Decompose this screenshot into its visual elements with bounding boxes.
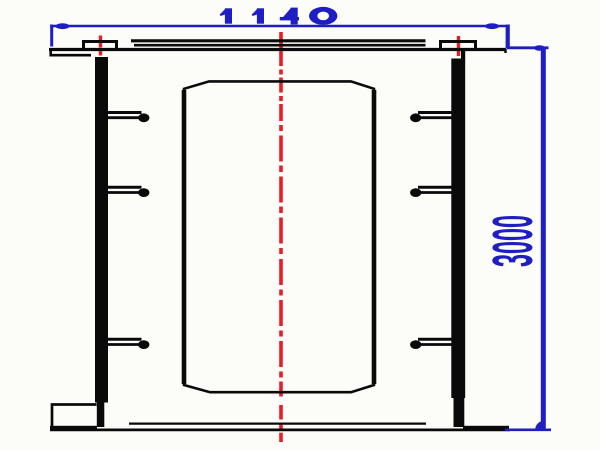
svg-text:3000: 3000: [481, 215, 545, 267]
